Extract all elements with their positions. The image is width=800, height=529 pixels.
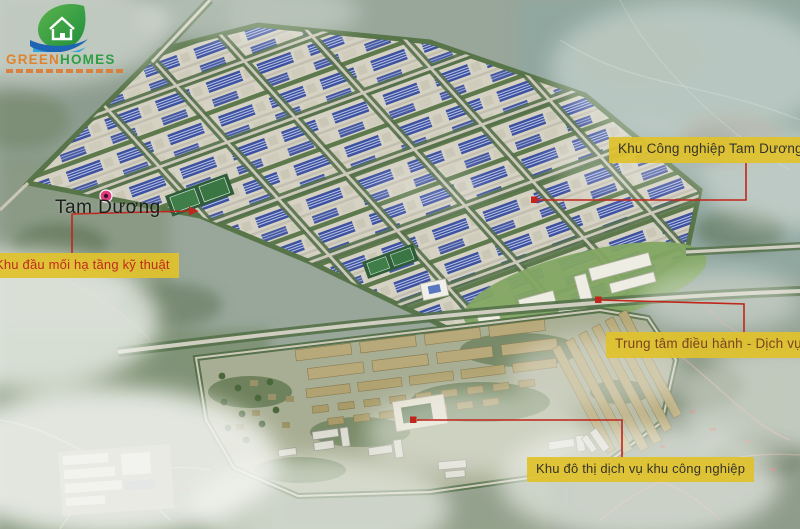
annotation-industrial-park: Khu Công nghiệp Tam Dương I - Kh xyxy=(609,137,800,163)
annotation-infrastructure-hub: Khu đầu mối hạ tầng kỹ thuật xyxy=(0,253,179,278)
logo-tagline xyxy=(6,69,124,73)
logo-text-green: GREEN xyxy=(6,52,60,67)
logo-text-homes: HOMES xyxy=(60,52,116,67)
logo-wordmark: GREENHOMES xyxy=(6,52,176,67)
masterplan-aerial-view: { "brand": { "name_part1": "GREEN", "nam… xyxy=(0,0,800,529)
greenhomes-logo: GREENHOMES xyxy=(6,2,176,73)
greenhomes-logo-mark xyxy=(20,2,140,52)
leaf-icon xyxy=(38,4,86,48)
annotation-operations-center: Trung tâm điều hành - Dịch vụ khu c xyxy=(606,332,800,358)
map-pin-label: Tam Dương xyxy=(55,197,161,219)
house-door xyxy=(60,33,65,39)
annotation-urban-services: Khu đô thị dịch vụ khu công nghiệp xyxy=(527,457,754,482)
